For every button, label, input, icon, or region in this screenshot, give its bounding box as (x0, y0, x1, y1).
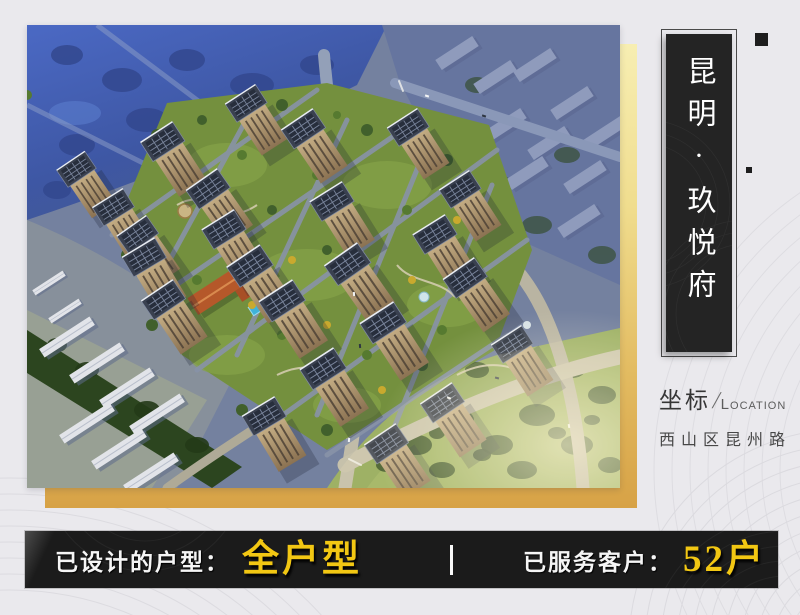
title-banner-inner: 昆明·玖悦府 (666, 34, 732, 352)
stat-label-served-clients: 已服务客户： (523, 543, 673, 577)
location-label-en: Location (721, 396, 787, 415)
stats-bar: 已设计的户型： 全户型 已服务客户： 52户 (25, 531, 778, 588)
poster: 昆明·玖悦府 坐标 / Location 西山区昆州路 已设计的户型： 全户型 … (0, 0, 800, 615)
location-section: 坐标 / Location 西山区昆州路 (659, 381, 799, 450)
location-heading: 坐标 / Location (659, 381, 799, 415)
location-address: 西山区昆州路 (659, 426, 799, 450)
stat-value-served-clients: 52户 (683, 541, 766, 578)
deco-square-small (746, 167, 752, 173)
stat-label-designed-units: 已设计的户型： (55, 543, 230, 577)
fountain (419, 292, 429, 302)
project-title: 昆明·玖悦府 (678, 34, 720, 352)
deco-square-large (755, 33, 768, 46)
aerial-rendering (27, 25, 620, 488)
stat-value-designed-units: 全户型 (242, 541, 362, 578)
stats-divider (450, 545, 453, 575)
location-label-cn: 坐标 (659, 381, 711, 415)
title-banner: 昆明·玖悦府 (661, 29, 737, 357)
